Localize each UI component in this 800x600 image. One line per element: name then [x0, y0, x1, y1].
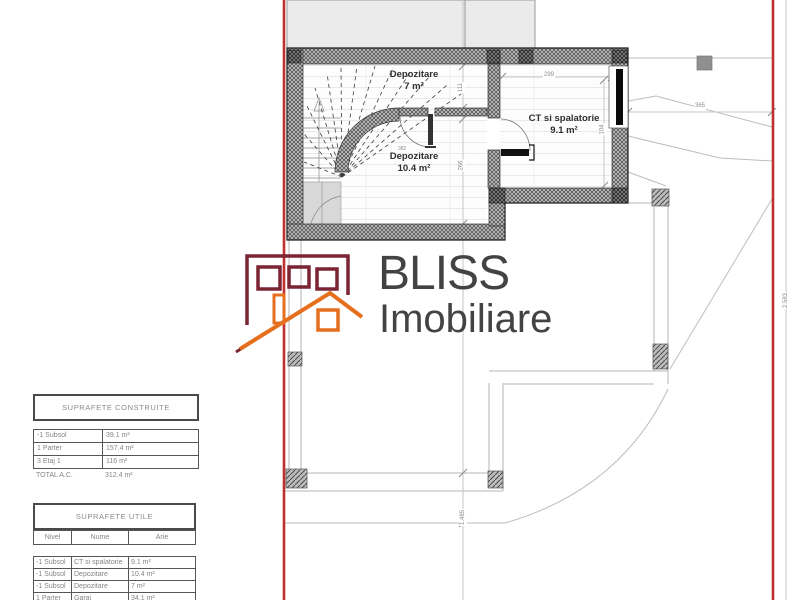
table-cell: 39.1 m² — [102, 430, 198, 442]
constructed-areas-table: -1 Subsol39.1 m²1 Parter157.4 m²3 Etaj 1… — [33, 429, 199, 469]
constructed-total-row: TOTAL A.C. 312.4 m² — [33, 472, 197, 479]
col-nume: Nume — [71, 531, 128, 544]
table-cell: 116 m² — [102, 456, 198, 468]
table-row: 3 Etaj 1116 m² — [34, 455, 198, 468]
table-cell: 34.1 m² — [128, 593, 195, 600]
logo-house-maroon — [236, 256, 348, 352]
col-arie: Arie — [128, 531, 195, 544]
table-cell: -1 Subsol — [34, 430, 102, 442]
usable-areas-table: -1 SubsolCT si spalatorie9.1 m²-1 Subsol… — [33, 556, 196, 600]
table-row: -1 Subsol39.1 m² — [34, 430, 198, 442]
total-value: 312.4 m² — [105, 472, 133, 479]
table-row: -1 SubsolDepozitare10.4 m² — [34, 568, 195, 580]
table-cell: Depozitare — [71, 569, 128, 580]
dim-111: 111 — [458, 82, 465, 93]
table-cell: Garaj — [71, 593, 128, 600]
floor-plan-page: Depozitare 7 m² Depozitare 10.4 m² CT si… — [0, 0, 800, 600]
dim-2583: 2.583 — [783, 292, 790, 309]
total-label: TOTAL A.C. — [33, 472, 73, 479]
table-cell: CT si spalatorie — [71, 557, 128, 568]
table-row: Nivel Nume Arie — [34, 531, 195, 544]
room-label-depozitare-7: Depozitare 7 m² — [354, 69, 474, 92]
logo-title: BLISS — [378, 250, 509, 298]
constructed-areas-title: SUPRAFETE CONSTRUITE — [62, 403, 170, 412]
table-cell: 9.1 m² — [128, 557, 195, 568]
bliss-logo-icon — [228, 246, 370, 358]
table-cell: -1 Subsol — [34, 569, 71, 580]
table-cell: 1 Parter — [34, 443, 102, 455]
dim-365: 365 — [694, 103, 706, 110]
dim-104: 104 — [600, 123, 607, 135]
table-row: -1 SubsolDepozitare7 m² — [34, 580, 195, 592]
table-cell: 1 Parter — [34, 593, 71, 600]
room-label-depozitare-104: Depozitare 10.4 m² — [354, 151, 474, 174]
room-name: Depozitare — [354, 151, 474, 163]
constructed-areas-header: SUPRAFETE CONSTRUITE — [33, 394, 199, 421]
table-cell: -1 Subsol — [34, 557, 71, 568]
table-cell: Depozitare — [71, 581, 128, 592]
table-row: 1 ParterGaraj34.1 m² — [34, 592, 195, 600]
table-cell: 7 m² — [128, 581, 195, 592]
dim-266: 266 — [459, 159, 466, 171]
table-cell: 157.4 m² — [102, 443, 198, 455]
logo-roof-orange — [240, 293, 362, 349]
table-row: 1 Parter157.4 m² — [34, 442, 198, 455]
dim-1485: 1.485 — [460, 509, 467, 526]
dim-382: 382 — [397, 146, 407, 153]
usable-areas-column-header: Nivel Nume Arie — [33, 530, 196, 545]
dim-299: 299 — [543, 72, 555, 79]
room-name: Depozitare — [354, 69, 474, 81]
room-area: 7 m² — [354, 81, 474, 93]
usable-areas-title: SUPRAFETE UTILE — [76, 512, 153, 521]
table-cell: -1 Subsol — [34, 581, 71, 592]
table-row: -1 SubsolCT si spalatorie9.1 m² — [34, 557, 195, 568]
usable-areas-header: SUPRAFETE UTILE — [33, 503, 196, 530]
col-nivel: Nivel — [34, 531, 71, 544]
table-cell: 10.4 m² — [128, 569, 195, 580]
room-area: 10.4 m² — [354, 163, 474, 175]
table-cell: 3 Etaj 1 — [34, 456, 102, 468]
logo-subtitle: Imobiliare — [379, 297, 552, 341]
neighbour-building-block — [287, 0, 535, 48]
